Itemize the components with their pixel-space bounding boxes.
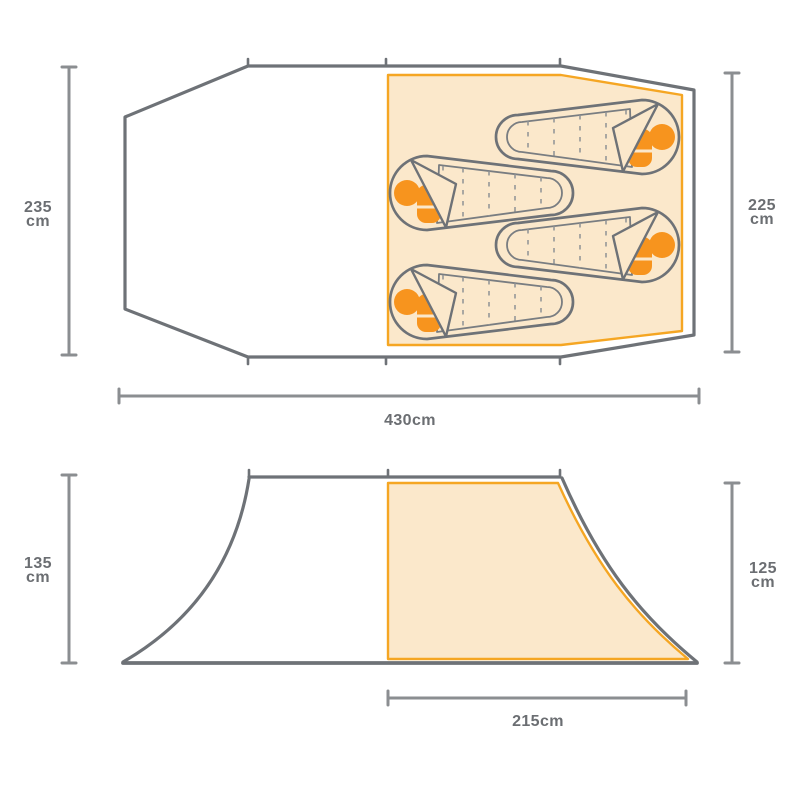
- dimension-floorplan-left: 235 cm: [24, 67, 76, 355]
- dimension-side-inner-width: 215cm: [388, 691, 686, 730]
- dimension-side-right: 125 cm: [725, 483, 777, 663]
- tent-dimensions-diagram: 235 cm 225 cm 430cm 135 cm 125 cm 215cm: [0, 0, 800, 800]
- dimension-side-left: 135 cm: [24, 475, 76, 663]
- dimension-line-430: [119, 389, 699, 403]
- sleeping-area-side: [388, 483, 688, 659]
- dimension-value-430: 430cm: [384, 412, 436, 429]
- dimension-unit-235: cm: [26, 213, 50, 230]
- dimension-line-135: [62, 475, 76, 663]
- side-left-slope: [123, 479, 249, 662]
- diagram-canvas: 235 cm 225 cm 430cm 135 cm 125 cm 215cm: [0, 0, 800, 800]
- floorplan-view: [125, 59, 694, 364]
- dimension-line-235: [62, 67, 76, 355]
- side-profile-view: [123, 470, 697, 663]
- dimension-unit-225: cm: [750, 211, 774, 228]
- dimension-line-125: [725, 483, 739, 663]
- dimension-unit-125: cm: [751, 574, 775, 591]
- dimension-line-215: [388, 691, 686, 705]
- dimension-value-215: 215cm: [512, 713, 564, 730]
- dimension-floorplan-width: 430cm: [119, 389, 699, 429]
- dimension-unit-135: cm: [26, 569, 50, 586]
- dimension-line-225: [725, 73, 739, 352]
- dimension-floorplan-right: 225 cm: [725, 73, 776, 352]
